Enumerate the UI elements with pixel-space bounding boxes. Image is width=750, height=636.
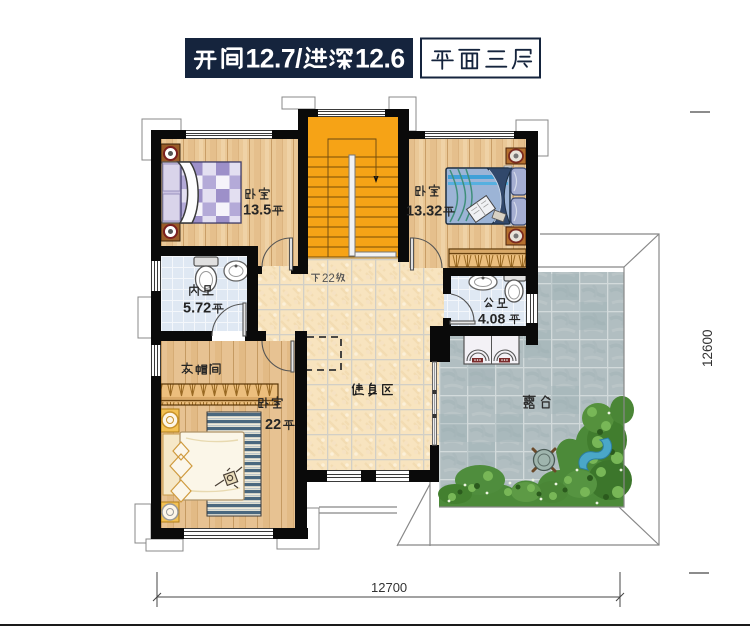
svg-text:22: 22 xyxy=(265,417,281,433)
svg-text:12600: 12600 xyxy=(700,329,715,367)
svg-text:4.08: 4.08 xyxy=(478,311,505,327)
svg-text:13.5: 13.5 xyxy=(243,203,271,219)
svg-text:12700: 12700 xyxy=(371,580,407,595)
svg-text:5.72: 5.72 xyxy=(183,301,211,317)
svg-text:22: 22 xyxy=(322,273,335,285)
svg-text:12.7/: 12.7/ xyxy=(246,44,304,74)
svg-text:13.32: 13.32 xyxy=(406,204,442,220)
svg-text:12.6: 12.6 xyxy=(355,44,405,74)
